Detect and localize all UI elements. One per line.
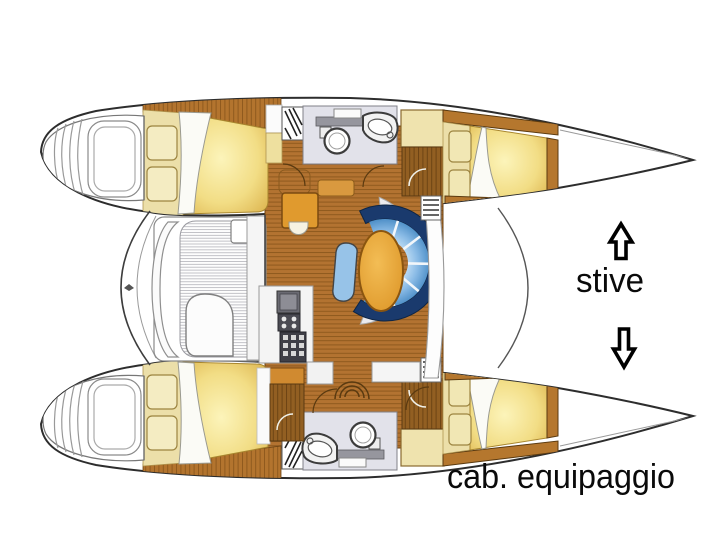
- svg-text:stive: stive: [576, 262, 644, 300]
- svg-text:cab. equipaggio: cab. equipaggio: [447, 458, 675, 496]
